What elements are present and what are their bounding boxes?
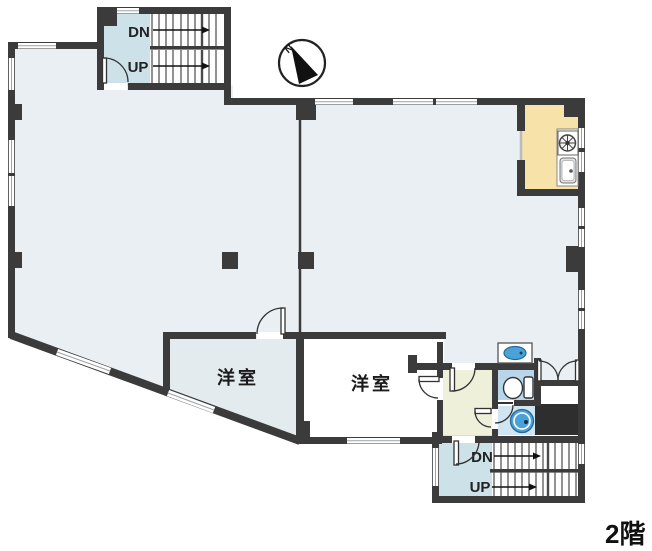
stair-dn-label: DN — [471, 449, 493, 466]
wall — [517, 98, 525, 131]
window — [579, 290, 584, 308]
pillar — [566, 246, 583, 272]
wall — [517, 189, 582, 196]
window — [9, 176, 14, 206]
window — [579, 208, 584, 226]
hall-floor — [440, 364, 495, 440]
floor-label: 2階 — [605, 519, 645, 549]
window — [347, 438, 400, 444]
wall — [408, 355, 417, 373]
toilet-icon — [504, 377, 534, 399]
stair-divider — [490, 469, 578, 473]
floor-plan: DN UP DN UP — [0, 0, 652, 551]
wall — [98, 7, 117, 26]
compass-icon: N — [279, 40, 325, 86]
window — [117, 8, 139, 14]
stove-icon — [558, 131, 578, 155]
kitchen-counter — [557, 129, 578, 186]
wall — [97, 83, 104, 90]
wall — [437, 399, 443, 440]
room-label-left: 洋室 — [217, 367, 259, 388]
wall — [224, 7, 231, 105]
window — [436, 99, 477, 105]
pillar — [564, 98, 585, 117]
pillar — [296, 98, 316, 120]
wall — [475, 363, 540, 370]
stair-up-label: UP — [470, 479, 491, 496]
stair-dn-label: DN — [128, 24, 150, 41]
wall — [475, 436, 585, 443]
window — [9, 58, 14, 90]
window — [579, 311, 584, 329]
window — [433, 448, 438, 486]
laundry-basin-icon — [511, 410, 534, 433]
window — [579, 128, 584, 148]
pillar — [8, 252, 22, 268]
wall — [163, 332, 256, 339]
room-left-floor — [167, 336, 299, 441]
window — [9, 140, 14, 173]
window — [393, 99, 433, 105]
window — [579, 444, 584, 464]
pillar — [296, 421, 310, 438]
wall — [128, 83, 231, 90]
wall — [437, 342, 443, 379]
closet-floor — [536, 383, 579, 405]
room-label-right: 洋室 — [351, 373, 393, 394]
stair-up-label: UP — [128, 59, 149, 76]
duct-space — [535, 404, 581, 440]
kitchen-sink-icon — [560, 158, 576, 183]
window — [315, 99, 353, 105]
pillar — [8, 104, 22, 120]
window — [579, 152, 584, 172]
stair-divider — [150, 46, 229, 50]
floor-plan-page: DN UP DN UP — [0, 0, 652, 551]
wall — [432, 496, 585, 503]
pillar — [222, 252, 238, 269]
wall — [492, 429, 498, 440]
wall — [163, 332, 170, 395]
wall — [283, 332, 446, 339]
window — [579, 229, 584, 247]
pillar — [298, 252, 314, 269]
window — [18, 43, 56, 49]
wash-basin-icon — [498, 343, 532, 363]
